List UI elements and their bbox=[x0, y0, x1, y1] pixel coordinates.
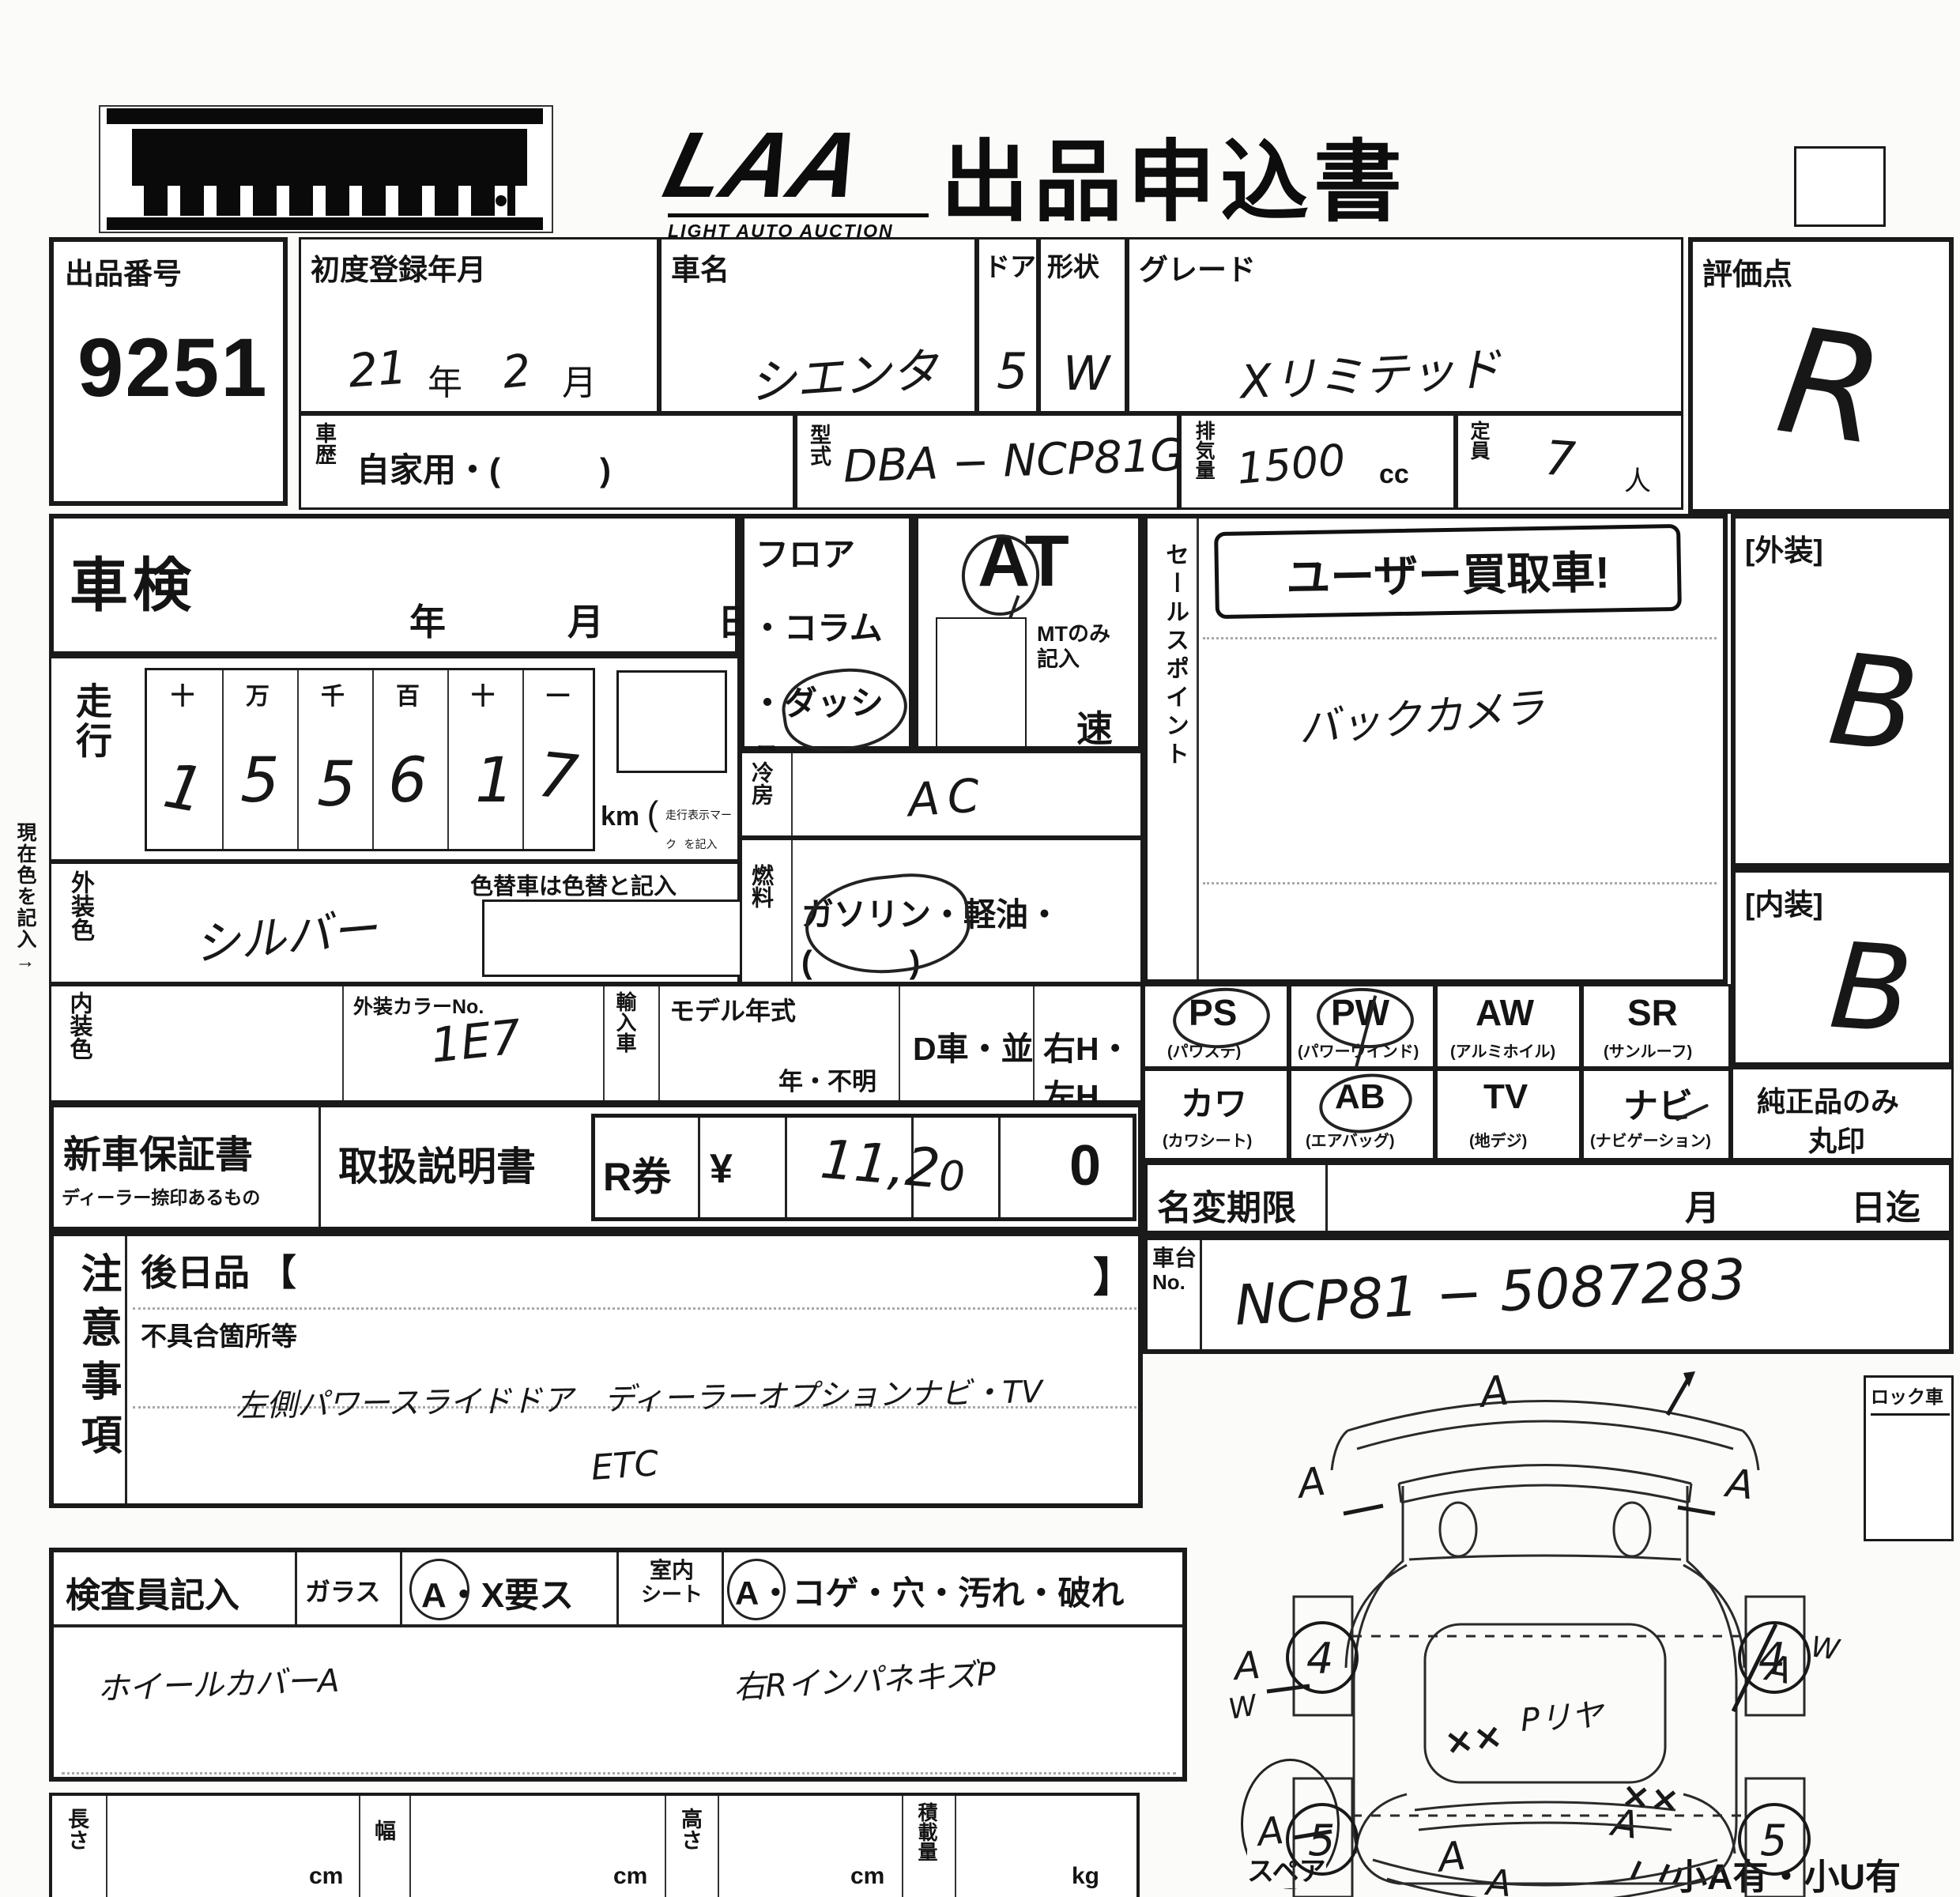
model-year-opts: 年・不明 bbox=[778, 1062, 876, 1097]
history-cell: 車歴 自家用・( ) bbox=[299, 413, 795, 510]
shape-value: W bbox=[1063, 346, 1110, 402]
digit-header: 十 bbox=[471, 677, 495, 711]
mt-note-line: 記入 bbox=[1037, 647, 1110, 672]
later-items-close: 】 bbox=[1093, 1244, 1134, 1303]
current-color-note: 現在色を記入→ bbox=[11, 822, 40, 974]
mileage-row: 走行 十 万 千 百 十 一 1 5 5 6 1 7 km ( 走行表示マーク bbox=[49, 656, 740, 862]
xx-mark: ×× bbox=[1619, 1774, 1682, 1820]
ac-row: 冷房 AC bbox=[740, 751, 1143, 838]
exterior-color-label: 外装色 bbox=[62, 870, 97, 941]
option-sub: (地デジ) bbox=[1469, 1128, 1527, 1151]
a-mark: A bbox=[1293, 1458, 1329, 1508]
score-value: R bbox=[1769, 295, 1893, 478]
repaint-note: 色替車は色替と記入 bbox=[470, 868, 677, 901]
sales-point-label: セールスポイント bbox=[1157, 542, 1192, 770]
option-cell-ps: PS (パワステ) bbox=[1143, 984, 1289, 1069]
capacity-value: 7 bbox=[1543, 431, 1577, 488]
header-corner-box bbox=[1794, 146, 1886, 227]
front-bumper-arc bbox=[1347, 1401, 1743, 1431]
option-cell-ab: AB (エアバッグ) bbox=[1289, 1069, 1435, 1160]
capacity-cell: 定員 7 人 bbox=[1456, 413, 1683, 510]
model-code-label: 型式 bbox=[804, 424, 835, 466]
mileage-digit: 6 bbox=[388, 745, 428, 817]
user-buyback-stamp: ユーザー買取車! bbox=[1214, 524, 1682, 619]
transfer-month: 月 bbox=[1685, 1179, 1720, 1230]
user-buyback-stamp-text: ユーザー買取車! bbox=[1286, 537, 1611, 606]
notes-handwriting-2: ETC bbox=[590, 1443, 660, 1488]
car-damage-diagram: A A A A A A A W W ×× ×× Pリヤ 4 4 5 5 bbox=[1221, 1363, 1877, 1897]
digit-header: 一 bbox=[546, 677, 570, 711]
option-sub: (カワシート) bbox=[1163, 1128, 1252, 1151]
seat-label-line: 室内 bbox=[624, 1559, 719, 1583]
interior-rating-box: [内装] B bbox=[1731, 868, 1954, 1067]
a-mark: A bbox=[1231, 1643, 1262, 1689]
year-char: 年 bbox=[428, 354, 462, 405]
w-mark: W bbox=[1226, 1689, 1261, 1726]
mileage-label: 走行 bbox=[66, 682, 118, 761]
rticket-box: R券 ¥ 11,2 0 0 bbox=[591, 1114, 1136, 1221]
load-label: 積載量 bbox=[912, 1802, 940, 1861]
notes-block: 注意事項 後日品 【 】 不具合箇所等 左側パワースライドドア ディーラーオプシ… bbox=[49, 1231, 1143, 1508]
length-label: 長さ bbox=[62, 1808, 92, 1850]
exterior-rating-value: B bbox=[1823, 625, 1925, 781]
transfer-deadline-label: 名変期限 bbox=[1157, 1179, 1296, 1230]
mileage-mark-box bbox=[616, 670, 727, 773]
option-code: SR bbox=[1627, 991, 1678, 1034]
first-reg-year-value: 21 bbox=[347, 341, 409, 398]
option-code: TV bbox=[1483, 1077, 1528, 1117]
lot-number-box: 出品番号 9251 bbox=[49, 237, 288, 506]
mt-box bbox=[936, 617, 1027, 748]
chassis-no-value: NCP81 − 5087283 bbox=[1233, 1246, 1747, 1338]
a-mark: A bbox=[1483, 1861, 1513, 1897]
option-sub: (パワーウインド) bbox=[1298, 1039, 1419, 1062]
option-cell-sr: SR (サンルーフ) bbox=[1581, 984, 1731, 1069]
floor-column-dash-cell: フロア ・コラム ・ダッシュ bbox=[740, 514, 914, 751]
lot-number-label: 出品番号 bbox=[65, 250, 182, 292]
floor-label: フロア bbox=[756, 528, 855, 576]
left-mirror bbox=[1440, 1503, 1476, 1556]
docs-row: 新車保証書 ディーラー捺印あるもの 取扱説明書 R券 ¥ 11,2 0 0 bbox=[49, 1103, 1143, 1231]
grade-cell: グレード Xリミテッド bbox=[1127, 237, 1683, 413]
sales-dotted-line bbox=[1203, 637, 1717, 639]
a-mark: A bbox=[1722, 1460, 1756, 1509]
width-label: 幅 bbox=[368, 1820, 399, 1841]
option-code: AB bbox=[1335, 1077, 1385, 1117]
load-unit: kg bbox=[1072, 1863, 1099, 1890]
option-code: PW bbox=[1331, 991, 1389, 1034]
mt-note: MTのみ 記入 bbox=[1037, 621, 1110, 673]
at-value: AT bbox=[978, 520, 1069, 603]
import-car-label: 輸入車 bbox=[611, 991, 640, 1053]
month-char: 月 bbox=[562, 354, 597, 405]
front-bumper-arc bbox=[1357, 1421, 1733, 1449]
car-name-value: シエンタ bbox=[746, 332, 940, 414]
seat-label: 室内 シート bbox=[624, 1559, 719, 1605]
later-items-label: 後日品 【 bbox=[141, 1244, 296, 1296]
rticket-label: R券 bbox=[603, 1145, 671, 1202]
dimensions-row: 長さ cm 幅 cm 高さ cm 積載量 kg bbox=[49, 1793, 1140, 1897]
genuine-parts-line: 丸印 bbox=[1808, 1118, 1865, 1160]
option-sub: (ナビゲーション) bbox=[1590, 1128, 1711, 1151]
seat-label-line: シート bbox=[624, 1583, 719, 1606]
warranty-cell: 新車保証書 ディーラー捺印あるもの bbox=[54, 1107, 318, 1227]
exterior-rating-box: [外装] B bbox=[1731, 514, 1954, 868]
glass-label: ガラス bbox=[305, 1572, 380, 1608]
model-code-cell: 型式 DBA − NCP81G bbox=[795, 413, 1179, 510]
right-mirror bbox=[1614, 1503, 1650, 1556]
digit-header: 十 bbox=[171, 677, 194, 711]
score-box: 評価点 R bbox=[1688, 237, 1954, 514]
car-body-outline bbox=[1354, 1486, 1736, 1884]
ac-label: 冷房 bbox=[750, 761, 777, 805]
option-sub: (サンルーフ) bbox=[1604, 1039, 1692, 1062]
model-code-value: DBA − NCP81G bbox=[842, 429, 1185, 492]
laa-logo: LAA LIGHT AUTO AUCTION bbox=[668, 119, 929, 237]
inspector-block: 検査員記入 ガラス A・X要ス 室内 シート A・コゲ・穴・汚れ・破れ ホイール… bbox=[49, 1548, 1187, 1782]
rticket-amount: 0 bbox=[939, 1153, 965, 1201]
ac-value: AC bbox=[906, 768, 989, 828]
wheel-number: 4 bbox=[1758, 1634, 1785, 1684]
interior-rating-label: [内装] bbox=[1745, 881, 1823, 923]
interior-color-row: 内装色 外装カラーNo. 1E7 輸入車 モデル年式 年・不明 D車・並 右H・… bbox=[49, 984, 1143, 1103]
digit-header: 千 bbox=[321, 677, 345, 711]
shaken-row: 車検 年 月 日 bbox=[49, 514, 740, 656]
history-label: 車歴 bbox=[309, 422, 340, 465]
xx-mark: ×× bbox=[1442, 1715, 1505, 1763]
option-cell-pw: PW (パワーウインド) bbox=[1289, 984, 1435, 1069]
shaken-label: 車検 bbox=[70, 538, 196, 623]
door-label: ドア bbox=[984, 246, 1036, 284]
score-label: 評価点 bbox=[1702, 250, 1792, 293]
wheel-number: 5 bbox=[1308, 1816, 1335, 1865]
warranty-label: 新車保証書 bbox=[63, 1123, 253, 1179]
warranty-sub: ディーラー捺印あるもの bbox=[62, 1182, 260, 1209]
chassis-no-row: 車台 No. NCP81 − 5087283 bbox=[1143, 1235, 1954, 1354]
option-code: ナビ bbox=[1623, 1077, 1693, 1128]
option-cell-tv: TV (地デジ) bbox=[1435, 1069, 1581, 1160]
inspector-dotted-line bbox=[62, 1772, 1176, 1774]
lock-car-box: ロック車 bbox=[1864, 1375, 1954, 1541]
d-car-label: D車・並 bbox=[913, 1022, 1034, 1069]
interior-rating-value: B bbox=[1826, 918, 1917, 1061]
digit-header: 百 bbox=[396, 677, 420, 711]
mileage-unit-note: を記入 bbox=[684, 838, 717, 850]
notes-label: 注意事項 bbox=[68, 1252, 127, 1467]
fuel-label: 燃料 bbox=[750, 864, 777, 908]
option-cell-aw: AW (アルミホイル) bbox=[1435, 984, 1581, 1069]
sales-point-box: セールスポイント ユーザー買取車! バックカメラ bbox=[1143, 514, 1728, 984]
first-reg-cell: 初度登録年月 21 年 2 月 bbox=[299, 237, 659, 413]
column-label: ・コラム bbox=[751, 602, 883, 650]
sales-point-value: バックカメラ bbox=[1295, 674, 1546, 755]
capacity-unit: 人 bbox=[1624, 459, 1651, 498]
mileage-digit: 1 bbox=[159, 750, 210, 827]
mt-note-line: MTのみ bbox=[1037, 621, 1110, 647]
width-unit: cm bbox=[613, 1863, 647, 1890]
displacement-value: 1500 bbox=[1235, 435, 1347, 494]
length-unit: cm bbox=[309, 1863, 343, 1890]
fuel-value: ガソリン・軽油・( ) bbox=[801, 888, 1140, 982]
first-reg-label: 初度登録年月 bbox=[311, 246, 486, 289]
seat-options: A・コゲ・穴・汚れ・破れ bbox=[735, 1567, 1124, 1615]
chassis-no-label: 車台 No. bbox=[1152, 1246, 1200, 1293]
defect-label: 不具合箇所等 bbox=[141, 1315, 297, 1353]
exterior-color-value: シルバー bbox=[191, 892, 379, 974]
sales-dotted-line bbox=[1203, 882, 1717, 884]
notes-handwriting-1: 左側パワースライドドア ディーラーオプションナビ・TV bbox=[236, 1367, 1043, 1426]
lock-car-label: ロック車 bbox=[1871, 1382, 1950, 1416]
manual-label: 取扱説明書 bbox=[338, 1135, 536, 1192]
grade-value: Xリミテッド bbox=[1238, 331, 1502, 411]
model-year-label: モデル年式 bbox=[669, 991, 796, 1028]
door-value: 5 bbox=[997, 342, 1027, 400]
auction-sheet: LAA LIGHT AUTO AUCTION 出品申込書 出品番号 9251 初… bbox=[0, 0, 1960, 1897]
option-code: カワ bbox=[1181, 1077, 1247, 1126]
capacity-label: 定員 bbox=[1464, 421, 1493, 460]
option-cell-navi: ナビ (ナビゲーション) bbox=[1581, 1069, 1731, 1160]
chassis-label-line: 車台 bbox=[1152, 1246, 1200, 1271]
car-name-cell: 車名 シエンタ bbox=[659, 237, 977, 413]
height-unit: cm bbox=[850, 1863, 884, 1890]
a-mark: A bbox=[1253, 1808, 1286, 1855]
shape-label: 形状 bbox=[1047, 246, 1099, 284]
mileage-digit: 5 bbox=[240, 745, 280, 817]
option-cell-kawa: カワ (カワシート) bbox=[1143, 1069, 1289, 1160]
exterior-color-row: 外装色 シルバー 色替車は色替と記入 bbox=[49, 862, 740, 984]
repaint-box bbox=[482, 899, 743, 977]
redacted-stamp-block bbox=[99, 105, 553, 233]
mileage-digit: 7 bbox=[534, 740, 581, 815]
mileage-unit-wrap: km ( 走行表示マーク を記入 ) bbox=[601, 794, 658, 834]
displacement-label: 排気量 bbox=[1188, 421, 1219, 480]
notes-dotted-line bbox=[133, 1307, 1136, 1310]
option-sub: (エアバッグ) bbox=[1306, 1128, 1395, 1151]
fuel-row: 燃料 ガソリン・軽油・( ) bbox=[740, 838, 1143, 984]
lot-number-value: 9251 bbox=[77, 321, 269, 416]
diagram-annotations: A A A A A A A W W ×× ×× Pリヤ 4 4 5 5 bbox=[1226, 1367, 1842, 1897]
displacement-unit: cc bbox=[1379, 459, 1409, 490]
shaken-month: 月 bbox=[567, 594, 604, 646]
yen-sign: ¥ bbox=[710, 1145, 733, 1193]
mileage-unit: km bbox=[601, 801, 639, 832]
history-value: 自家用・( ) bbox=[356, 443, 611, 492]
digit-header: 万 bbox=[246, 677, 269, 711]
exterior-rating-label: [外装] bbox=[1745, 526, 1823, 569]
mileage-grid: 十 万 千 百 十 一 1 5 5 6 1 7 bbox=[145, 668, 595, 851]
inspector-label: 検査員記入 bbox=[66, 1567, 239, 1617]
w-mark: W bbox=[1809, 1631, 1842, 1667]
rear-bumper-arc bbox=[1387, 1879, 1703, 1897]
door-cell: ドア 5 bbox=[977, 237, 1038, 413]
form-title: 出品申込書 bbox=[940, 111, 1407, 239]
displacement-cell: 排気量 1500 cc bbox=[1179, 413, 1456, 510]
wheel-number: 5 bbox=[1760, 1816, 1787, 1865]
transfer-until: 日迄 bbox=[1851, 1179, 1920, 1230]
genuine-parts-note: 純正品のみ 丸印 bbox=[1731, 1067, 1954, 1160]
mileage-digit: 5 bbox=[317, 749, 356, 820]
speed-char: 速 bbox=[1076, 700, 1113, 752]
transfer-deadline-row: 名変期限 月 日迄 bbox=[1143, 1160, 1954, 1235]
chassis-label-line: No. bbox=[1152, 1271, 1200, 1294]
shaken-year: 年 bbox=[409, 594, 446, 646]
option-code: PS bbox=[1189, 991, 1237, 1034]
laa-logo-text: LAA bbox=[656, 119, 940, 212]
height-label: 高さ bbox=[675, 1808, 706, 1850]
inspector-header: 検査員記入 ガラス A・X要ス 室内 シート A・コゲ・穴・汚れ・破れ bbox=[54, 1552, 1182, 1627]
center-note: Pリヤ bbox=[1519, 1697, 1606, 1739]
inspector-handwriting-2: 右RインパネキズP bbox=[733, 1648, 997, 1707]
grade-label: グレード bbox=[1139, 246, 1256, 289]
rticket-amount-printed: 0 bbox=[1069, 1133, 1101, 1198]
option-sub: (アルミホイル) bbox=[1450, 1039, 1555, 1062]
first-reg-month-value: 2 bbox=[500, 345, 533, 398]
a-mark: A bbox=[1476, 1367, 1511, 1418]
genuine-parts-line: 純正品のみ bbox=[1757, 1079, 1899, 1120]
option-code: AW bbox=[1476, 991, 1534, 1034]
wheel-number: 4 bbox=[1306, 1634, 1333, 1684]
inspector-handwriting-1: ホイールカバーA bbox=[96, 1655, 340, 1710]
interior-color-label: 内装色 bbox=[62, 991, 96, 1060]
mileage-digit: 1 bbox=[475, 745, 514, 817]
option-sub: (パワステ) bbox=[1167, 1039, 1241, 1062]
rticket-amount: 11,2 bbox=[818, 1129, 943, 1201]
at-cell: AT MTのみ 記入 速 bbox=[914, 514, 1143, 751]
glass-options: A・X要ス bbox=[421, 1567, 574, 1617]
color-no-value: 1E7 bbox=[428, 1009, 524, 1074]
shape-cell: 形状 W bbox=[1038, 237, 1127, 413]
car-name-label: 車名 bbox=[671, 246, 729, 289]
